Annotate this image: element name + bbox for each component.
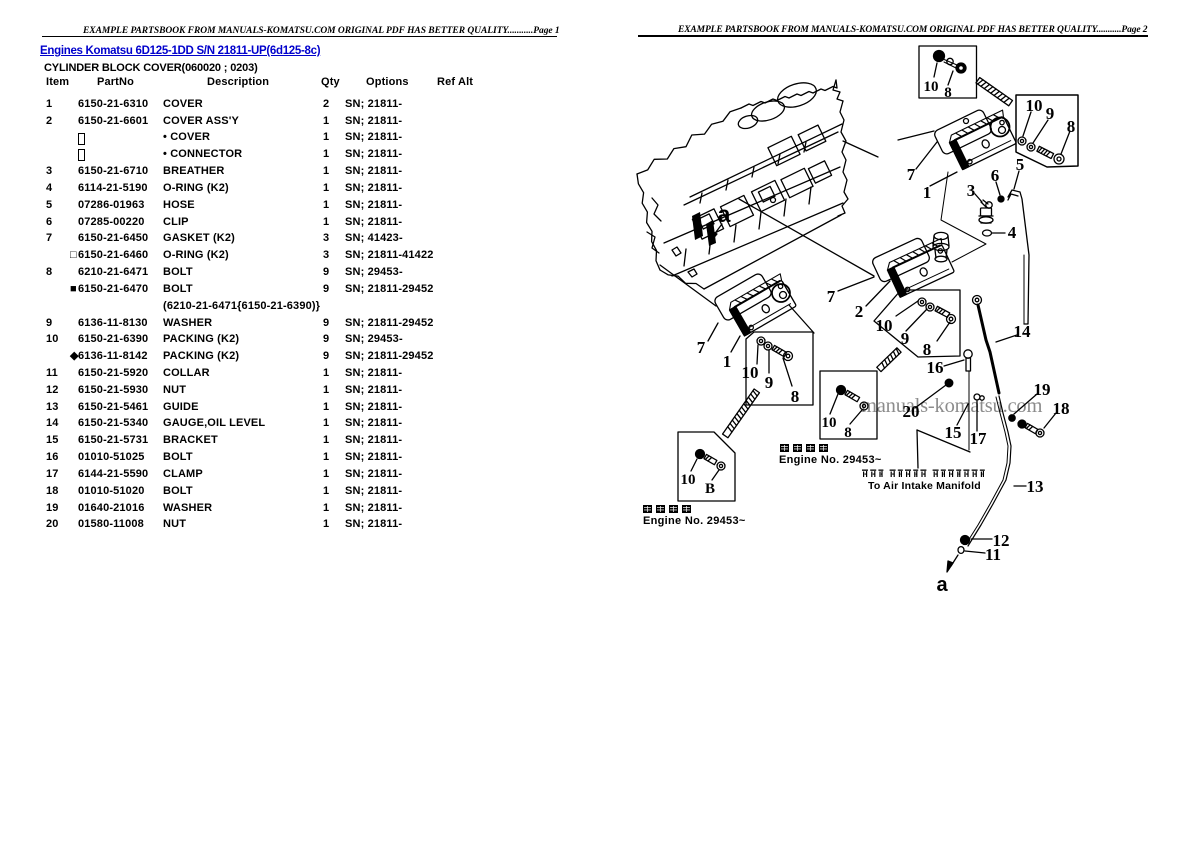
svg-text:a: a (718, 201, 731, 227)
svg-text:16: 16 (927, 358, 944, 377)
svg-text:10: 10 (742, 363, 759, 382)
svg-text:9: 9 (765, 373, 774, 392)
svg-text:10: 10 (876, 316, 893, 335)
svg-text:1: 1 (723, 352, 732, 371)
svg-text:6: 6 (991, 166, 1000, 185)
svg-text:8: 8 (923, 340, 932, 359)
svg-text:10: 10 (1026, 96, 1043, 115)
svg-text:14: 14 (1014, 322, 1032, 341)
svg-text:9: 9 (1046, 104, 1055, 123)
svg-text:5: 5 (1016, 155, 1025, 174)
svg-text:13: 13 (1027, 477, 1044, 496)
svg-text:18: 18 (1053, 399, 1070, 418)
svg-text:To Air Intake Manifold: To Air Intake Manifold (868, 480, 981, 492)
svg-text:10: 10 (822, 415, 837, 431)
svg-text:8: 8 (944, 85, 952, 101)
svg-text:7: 7 (907, 165, 916, 184)
svg-text:20: 20 (903, 402, 920, 421)
svg-text:3: 3 (967, 181, 976, 200)
svg-text:8: 8 (1067, 117, 1076, 136)
svg-text:B: B (705, 481, 715, 497)
svg-text:1: 1 (923, 183, 932, 202)
svg-text:Engine No. 29453~: Engine No. 29453~ (643, 515, 746, 527)
svg-text:4: 4 (1008, 223, 1017, 242)
svg-text:8: 8 (844, 425, 852, 441)
svg-text:17: 17 (970, 429, 988, 448)
svg-text:11: 11 (985, 545, 1001, 564)
svg-text:10: 10 (924, 79, 939, 95)
svg-text:a: a (936, 574, 948, 596)
svg-text:15: 15 (945, 423, 962, 442)
svg-text:10: 10 (681, 472, 696, 488)
svg-text:7: 7 (697, 338, 706, 357)
svg-text:2: 2 (855, 302, 864, 321)
svg-text:7: 7 (827, 287, 836, 306)
svg-text:19: 19 (1034, 380, 1051, 399)
svg-text:8: 8 (791, 387, 800, 406)
svg-text:9: 9 (901, 329, 910, 348)
svg-text:Engine No. 29453~: Engine No. 29453~ (779, 454, 882, 466)
